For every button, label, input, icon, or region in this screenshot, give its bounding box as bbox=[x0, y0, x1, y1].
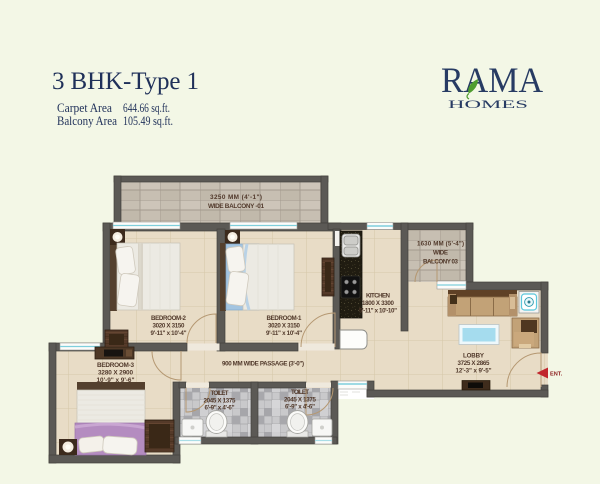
svg-text:BEDROOM-3: BEDROOM-3 bbox=[97, 362, 134, 369]
svg-text:3725 X 2865: 3725 X 2865 bbox=[458, 360, 491, 367]
svg-text:BEDROOM-1: BEDROOM-1 bbox=[267, 315, 303, 322]
svg-text:HOMES: HOMES bbox=[448, 99, 528, 111]
svg-text:TOILET: TOILET bbox=[291, 389, 309, 396]
svg-text:WIDE: WIDE bbox=[433, 250, 448, 257]
svg-text:644.66 sq.ft.: 644.66 sq.ft. bbox=[123, 101, 170, 115]
svg-text:RAMA: RAMA bbox=[441, 60, 543, 100]
svg-text:2045 X 1375: 2045 X 1375 bbox=[204, 398, 237, 405]
svg-text:12'-3" x 9'-5": 12'-3" x 9'-5" bbox=[456, 368, 492, 375]
svg-text:9'-11" x 10'-4": 9'-11" x 10'-4" bbox=[266, 330, 302, 337]
svg-text:3 BHK-Type 1: 3 BHK-Type 1 bbox=[52, 68, 199, 95]
svg-text:Balcony Area: Balcony Area bbox=[57, 114, 117, 128]
svg-text:LOBBY: LOBBY bbox=[463, 353, 485, 360]
svg-text:6'-9" x 4'-6": 6'-9" x 4'-6" bbox=[205, 405, 235, 412]
svg-text:BALCONY 03: BALCONY 03 bbox=[423, 259, 459, 266]
svg-text:1800 X 3300: 1800 X 3300 bbox=[362, 300, 395, 307]
svg-text:3020 X 3150: 3020 X 3150 bbox=[153, 323, 186, 330]
svg-text:10'-9" x 9'-6": 10'-9" x 9'-6" bbox=[97, 377, 135, 384]
svg-text:3250 MM (4'-1"): 3250 MM (4'-1") bbox=[210, 194, 262, 201]
svg-text:Carpet Area: Carpet Area bbox=[57, 101, 112, 115]
svg-text:3280 X 2900: 3280 X 2900 bbox=[98, 370, 133, 377]
svg-text:6'-9" x 4'-6": 6'-9" x 4'-6" bbox=[285, 404, 315, 411]
svg-text:3020 X 3150: 3020 X 3150 bbox=[268, 323, 301, 330]
svg-text:5'-11" x 10'-10": 5'-11" x 10'-10" bbox=[359, 308, 397, 315]
svg-text:105.49 sq.ft.: 105.49 sq.ft. bbox=[123, 114, 173, 128]
svg-text:900 MM WIDE PASSAGE (3'-0"): 900 MM WIDE PASSAGE (3'-0") bbox=[222, 361, 304, 368]
svg-text:BEDROOM-2: BEDROOM-2 bbox=[151, 315, 187, 322]
svg-text:9'-11" x 10'-4": 9'-11" x 10'-4" bbox=[151, 330, 187, 337]
svg-text:ENT.: ENT. bbox=[550, 372, 563, 378]
svg-text:1630 MM (5'-4"): 1630 MM (5'-4") bbox=[417, 241, 464, 248]
svg-text:TOILET: TOILET bbox=[211, 390, 229, 397]
svg-text:WIDE BALCONY -01: WIDE BALCONY -01 bbox=[208, 203, 264, 210]
svg-text:2045 X 1375: 2045 X 1375 bbox=[284, 397, 317, 404]
svg-text:KITCHEN: KITCHEN bbox=[366, 293, 391, 300]
